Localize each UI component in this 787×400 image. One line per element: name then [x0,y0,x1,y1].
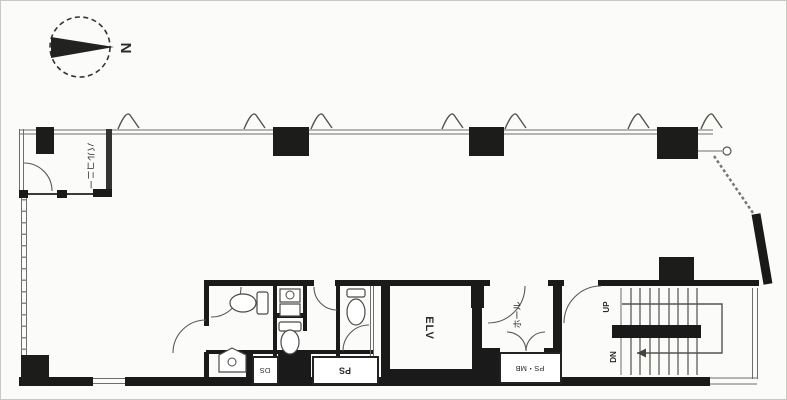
column [659,257,694,284]
toilet-block: DS PS [173,280,378,386]
stair-landing [612,325,701,338]
north-label: N [117,43,134,54]
elevator-shaft: ELV [381,284,484,378]
window-vent-icon [505,114,526,129]
meter-box-label: PS・MB [516,364,545,373]
stair-down-label: DN [609,351,618,363]
columns [21,127,698,386]
stair-up-label: UP [602,301,611,313]
column [469,127,504,156]
double-door-arc-icon [507,332,526,351]
window-vent-icon [628,114,649,129]
balcony-room: バルコニー [19,129,112,198]
door-arc-icon [343,325,369,351]
window-vent-icons [118,114,722,129]
elevator-label: ELV [423,316,435,340]
sink-icon [280,304,300,316]
window-vent-icon [311,114,332,129]
window-vent-icon [442,114,463,129]
arrowhead-icon [637,349,646,358]
toilet-tank-icon [347,289,365,297]
door-arc-icon [314,287,337,310]
toilet-icon [230,294,256,312]
column [21,355,49,386]
elevator-hall: ホール PS・MB [481,284,601,383]
balcony-label: バルコニー [86,142,96,189]
balcony-door-arc-icon [24,163,52,191]
stair-lobby-door-arc-icon [564,286,601,323]
north-arrow-icon: N [50,17,134,77]
pipe-shaft-label: PS [339,366,351,376]
outer-walls [19,129,768,386]
column [657,127,698,159]
corner-pivot-icon [723,147,731,155]
slanted-window-wall [714,156,753,213]
column [273,127,309,156]
floor-plan-canvas: N [0,0,787,400]
hall-label: ホール [512,301,522,328]
window-vent-icon [118,114,139,129]
window-vent-icon [701,114,722,129]
toilet-tank-icon [257,292,268,314]
toilet-icon [281,330,299,354]
toilet-icon [347,299,365,325]
double-door-arc-icon [526,332,545,351]
column [36,127,54,154]
floor-plan-drawing: N [1,1,787,400]
duct-shaft-label: DS [260,366,270,375]
window-vent-icon [244,114,265,129]
toilet-entry-door-arc-icon [173,320,206,353]
slanted-thick-wall [756,214,768,284]
stairwell: UP DN [602,288,722,375]
